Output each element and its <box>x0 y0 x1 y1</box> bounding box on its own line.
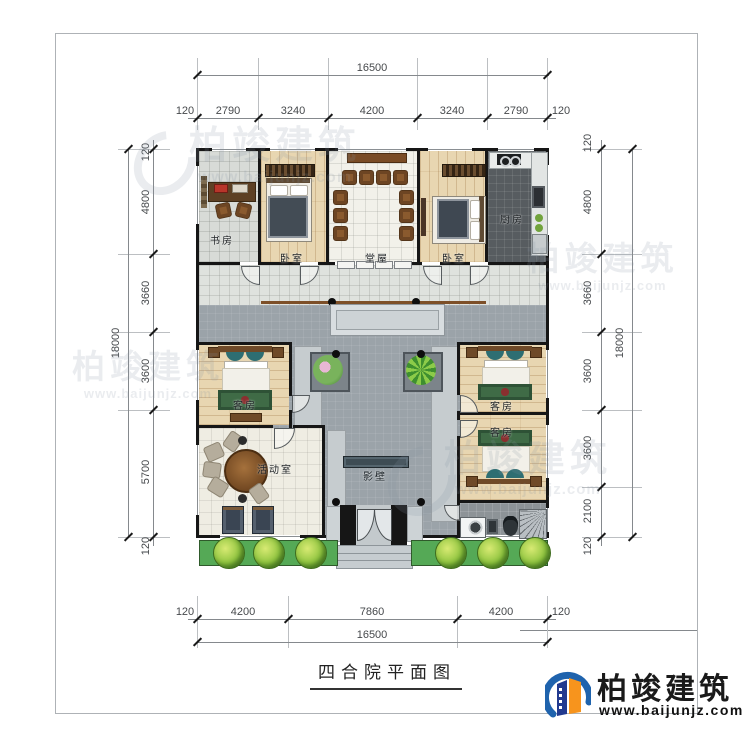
hall-door-panel <box>394 261 412 269</box>
room-label-guest-left: 客房 <box>231 397 259 412</box>
window <box>196 350 199 400</box>
bush <box>295 537 327 569</box>
wall-interior <box>417 151 420 262</box>
dim-top-seg: 3240 <box>273 105 313 117</box>
dim-right-seg: 2100 <box>582 491 594 531</box>
fridge <box>532 234 547 254</box>
hall-entry-platform <box>330 304 445 336</box>
dim-left-seg: 4800 <box>140 182 152 222</box>
room-label-bedroom-left: 卧室 <box>278 250 306 265</box>
wall-bathroom-top <box>460 500 546 503</box>
tv-console <box>421 198 426 236</box>
duvet <box>482 446 530 472</box>
dim-right-seg: 3660 <box>582 273 594 313</box>
wall-right-wing-left <box>457 436 460 505</box>
desk-items <box>214 184 228 193</box>
gate-pier <box>391 505 407 545</box>
wall-interior <box>488 262 546 265</box>
duvet <box>437 199 469 239</box>
oven <box>532 186 545 208</box>
pillow <box>470 200 480 219</box>
armchair <box>359 170 374 185</box>
extension-line <box>582 487 642 488</box>
extension-line <box>288 596 289 648</box>
gate-pier <box>340 505 356 545</box>
extension-line <box>582 410 642 411</box>
dim-right-seg: 3600 <box>582 351 594 391</box>
nightstand <box>466 476 478 487</box>
pillow <box>290 185 308 196</box>
wall-interior <box>326 151 329 262</box>
plant-palm <box>406 355 436 385</box>
lounge-chair <box>252 506 274 534</box>
dim-top-seg: 120 <box>548 105 574 117</box>
stool <box>238 494 247 503</box>
extension-line <box>118 332 170 333</box>
lounge-chair <box>222 506 244 534</box>
console-table <box>347 153 407 163</box>
duvet <box>222 368 270 392</box>
wall-interior <box>318 262 335 265</box>
dim-left-total: 18000 <box>110 319 122 367</box>
dim-bottom-seg: 7860 <box>352 606 392 618</box>
room-label-kitchen: 厨房 <box>498 211 526 226</box>
washing-machine <box>460 517 486 538</box>
armchair <box>399 226 414 241</box>
armchair <box>376 170 391 185</box>
logo-url: www.baijunjz.com <box>599 702 744 718</box>
gate-side-block <box>407 506 423 542</box>
cabinet <box>487 519 498 534</box>
armchair <box>333 190 348 205</box>
hall-floor <box>329 151 417 262</box>
dimension-line-bottom-segments <box>188 619 556 620</box>
armchair <box>333 226 348 241</box>
wardrobe <box>442 164 486 177</box>
gate-steps <box>336 545 413 569</box>
window <box>498 148 534 151</box>
dimension-line-top-total <box>196 75 549 76</box>
company-logo: 柏竣建筑 www.baijunjz.com <box>545 662 745 724</box>
dim-right-total: 18000 <box>614 319 626 367</box>
room-label-activity: 活动室 <box>254 461 296 476</box>
dim-left-seg: 5700 <box>140 452 152 492</box>
nightstand <box>272 347 284 358</box>
dim-left-seg: 120 <box>140 132 152 172</box>
armchair <box>399 190 414 205</box>
window <box>546 350 549 398</box>
bush <box>253 537 285 569</box>
window <box>212 148 246 151</box>
dim-bottom-seg: 4200 <box>481 606 521 618</box>
window <box>428 148 472 151</box>
dim-left-seg: 120 <box>140 526 152 566</box>
desk-items <box>232 184 248 193</box>
room-label-hall: 堂屋 <box>363 250 391 265</box>
wardrobe <box>265 164 315 177</box>
bookshelf <box>201 176 207 208</box>
wall-right-wing-top <box>457 342 549 345</box>
extension-line <box>582 332 642 333</box>
wall-activity-top <box>196 425 273 428</box>
dim-top-seg: 4200 <box>352 105 392 117</box>
drawing-title: 四合院平面图 <box>305 658 469 683</box>
wall-interior <box>199 262 240 265</box>
window <box>196 166 199 224</box>
dimension-line-left-total <box>128 148 129 538</box>
plants-pots <box>535 224 543 232</box>
dim-left-seg: 3600 <box>140 351 152 391</box>
wall-interior <box>412 262 422 265</box>
dim-left-seg: 3660 <box>140 273 152 313</box>
nightstand <box>530 476 542 487</box>
dim-top-seg: 2790 <box>208 105 248 117</box>
drawing-title-underline <box>310 688 462 690</box>
logo-icon <box>545 664 591 727</box>
room-label-study: 书房 <box>208 232 236 247</box>
dim-right-seg: 120 <box>582 526 594 566</box>
dim-bottom-total: 16500 <box>346 629 398 641</box>
extension-line <box>118 254 170 255</box>
column <box>332 350 340 358</box>
dimension-line-right-total <box>632 148 633 538</box>
hall-door-panel <box>337 261 355 269</box>
armchair <box>393 170 408 185</box>
armchair <box>399 208 414 223</box>
dim-top-seg: 2790 <box>496 105 536 117</box>
bush <box>213 537 245 569</box>
bed-headboard <box>266 178 310 183</box>
column <box>332 498 340 506</box>
wall-activity-top <box>293 425 325 428</box>
duvet <box>268 196 308 238</box>
dim-right-seg: 4800 <box>582 182 594 222</box>
dim-bottom-seg: 120 <box>548 606 574 618</box>
floorplan-page: { "title": {"text": "四合院平面图"}, "logo": {… <box>0 0 750 750</box>
dimension-line-left-segments <box>153 140 154 546</box>
stove-burner <box>510 156 521 167</box>
nightstand <box>466 347 478 358</box>
wall-right-wing-left <box>457 342 460 395</box>
dim-top-seg: 120 <box>172 105 198 117</box>
pillow <box>470 221 480 240</box>
window <box>338 148 406 151</box>
wall-guest-left-right <box>289 342 292 396</box>
dim-bottom-seg: 120 <box>172 606 198 618</box>
plant-flower <box>313 355 343 385</box>
bed-headboard <box>478 479 532 484</box>
room-label-guest-right1: 客房 <box>488 398 516 413</box>
window <box>196 445 199 515</box>
wall-guest-left-top <box>196 342 292 345</box>
bush <box>519 537 551 569</box>
column <box>417 498 425 506</box>
window <box>546 425 549 478</box>
dim-top-total: 16500 <box>346 62 398 74</box>
dim-right-seg: 120 <box>582 123 594 163</box>
column <box>417 350 425 358</box>
bench <box>230 413 262 422</box>
extension-line <box>118 410 170 411</box>
toilet <box>503 516 518 536</box>
window <box>270 148 315 151</box>
extension-line <box>457 596 458 648</box>
seat <box>202 461 222 479</box>
pillow <box>270 185 288 196</box>
dimension-line-bottom-total <box>196 642 549 643</box>
dimension-line-top-segments <box>188 118 556 119</box>
duvet <box>482 367 530 385</box>
extension-line <box>582 254 642 255</box>
room-label-bedroom-right: 卧室 <box>440 250 468 265</box>
plants-pots <box>535 214 543 222</box>
corner-shower <box>519 509 547 539</box>
bush <box>477 537 509 569</box>
room-label-screen-wall: 影壁 <box>361 468 389 483</box>
bush <box>435 537 467 569</box>
chair <box>215 202 233 220</box>
wall-activity-right <box>322 428 325 538</box>
dim-top-seg: 3240 <box>432 105 472 117</box>
wall-interior <box>258 151 261 262</box>
screen-wall <box>343 456 409 468</box>
armchair <box>333 208 348 223</box>
dim-right-seg: 3600 <box>582 428 594 468</box>
armchair <box>342 170 357 185</box>
stool <box>238 436 247 445</box>
room-label-guest-right2: 客房 <box>488 424 516 439</box>
dim-bottom-seg: 4200 <box>223 606 263 618</box>
